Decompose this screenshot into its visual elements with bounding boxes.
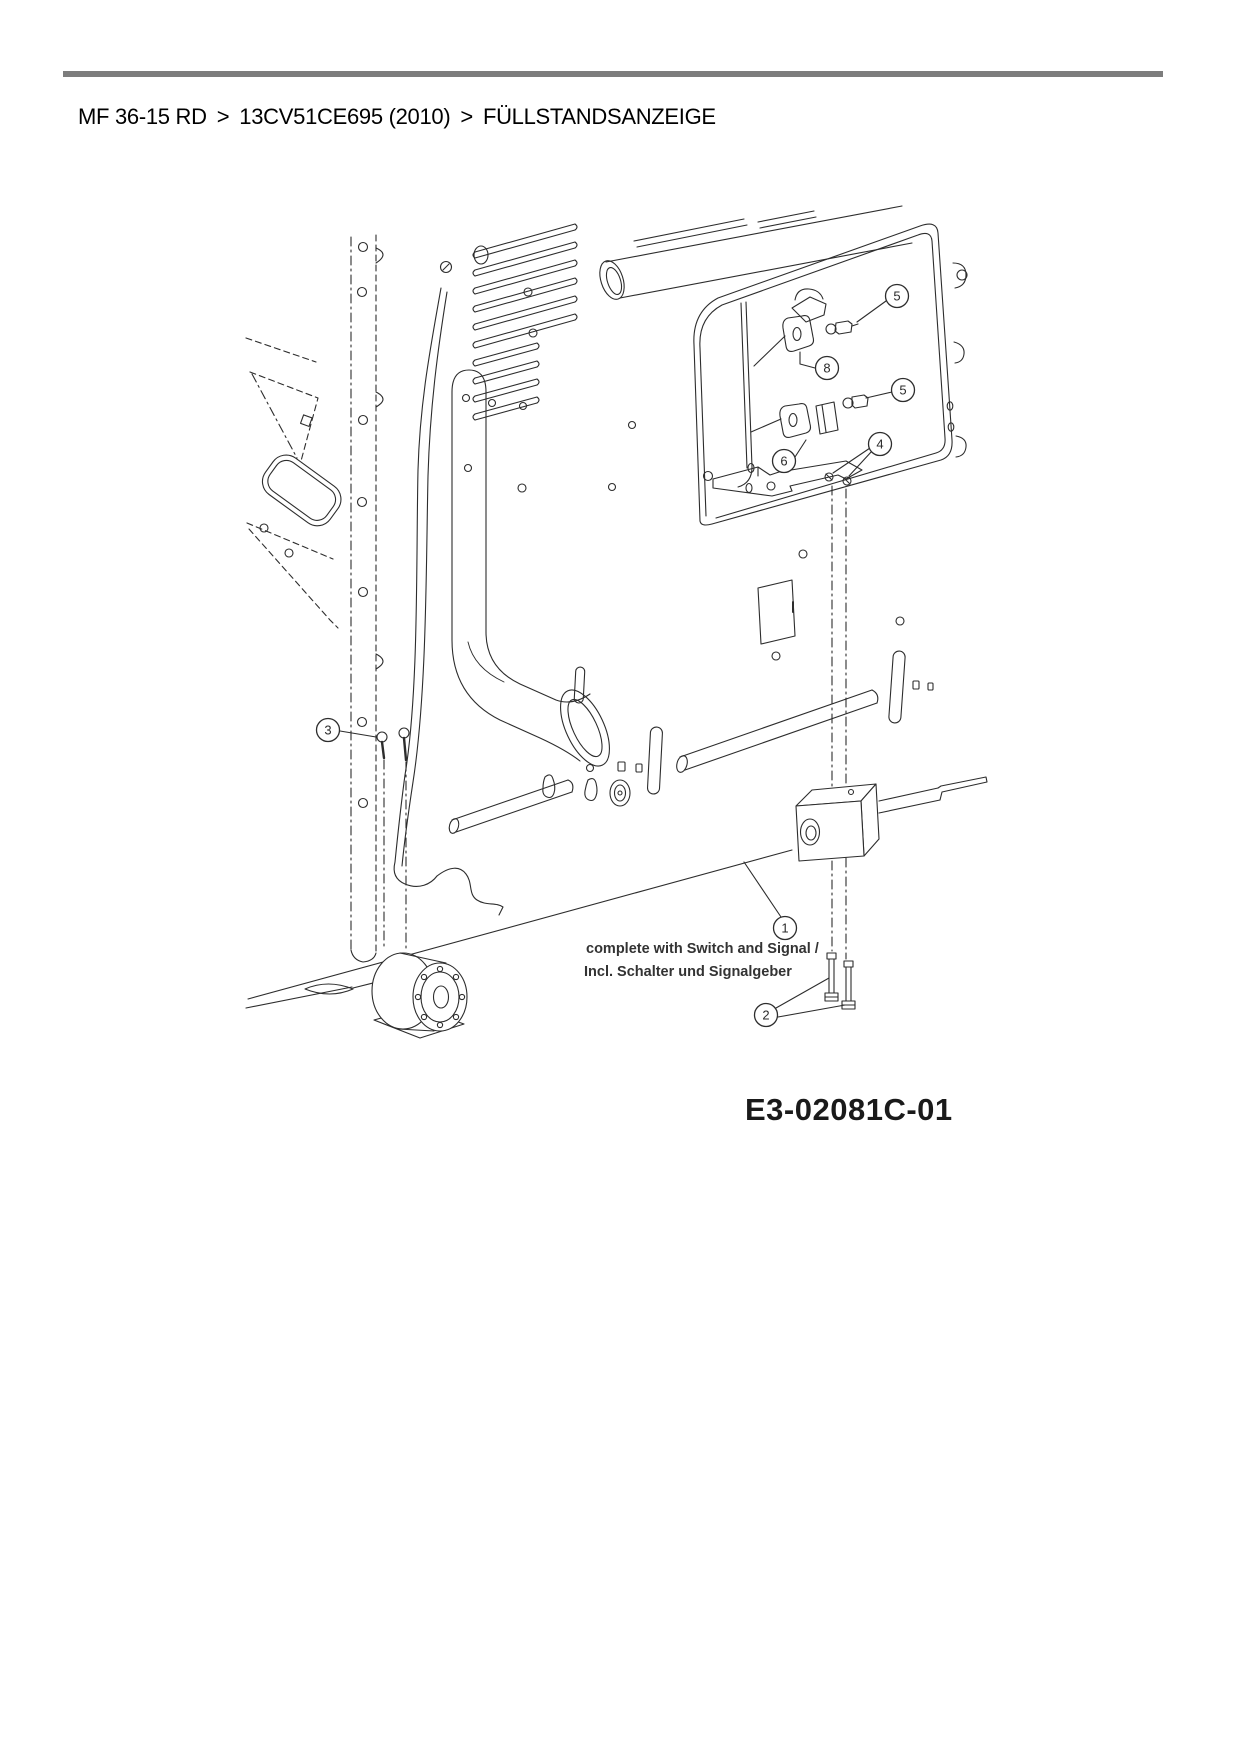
callout-4[interactable]: 4	[869, 433, 892, 456]
svg-text:3: 3	[324, 723, 331, 738]
callout-6[interactable]: 6	[773, 450, 796, 473]
note-text-line2: Incl. Schalter und Signalgeber	[584, 964, 792, 980]
callout-8[interactable]: 8	[816, 357, 839, 380]
callout-2[interactable]: 2	[755, 1004, 778, 1027]
svg-text:5: 5	[899, 383, 906, 398]
diagram-linework	[246, 206, 987, 1038]
parts-diagram: 58564312 complete with Switch and Signal…	[0, 0, 1240, 1754]
drawing-number: E3-02081C-01	[745, 1092, 953, 1127]
svg-text:8: 8	[823, 361, 830, 376]
callout-1[interactable]: 1	[774, 917, 797, 940]
callout-5[interactable]: 5	[892, 379, 915, 402]
svg-text:4: 4	[876, 437, 883, 452]
callout-3[interactable]: 3	[317, 719, 340, 742]
callout-5[interactable]: 5	[886, 285, 909, 308]
svg-text:5: 5	[893, 289, 900, 304]
svg-text:6: 6	[780, 454, 787, 469]
svg-text:1: 1	[781, 921, 788, 936]
svg-text:2: 2	[762, 1008, 769, 1023]
note-text-line1: complete with Switch and Signal /	[586, 941, 819, 957]
